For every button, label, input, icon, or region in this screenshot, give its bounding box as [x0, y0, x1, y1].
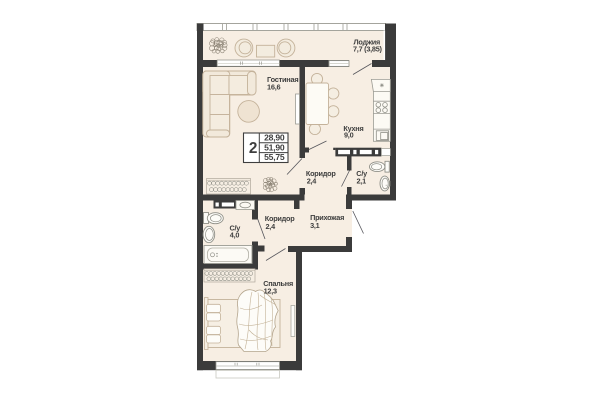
svg-text:2,4: 2,4	[266, 222, 277, 231]
svg-text:4,0: 4,0	[230, 231, 240, 240]
svg-text:2: 2	[249, 140, 257, 157]
svg-text:51,90: 51,90	[264, 142, 285, 152]
svg-text:3,1: 3,1	[310, 221, 320, 230]
svg-text:2,1: 2,1	[357, 177, 367, 186]
svg-text:7,7 (3,85): 7,7 (3,85)	[353, 45, 383, 54]
svg-text:28,90: 28,90	[264, 133, 285, 143]
svg-text:55,75: 55,75	[264, 152, 285, 162]
svg-text:2,4: 2,4	[307, 176, 318, 185]
svg-text:9,0: 9,0	[344, 131, 354, 140]
svg-text:12,3: 12,3	[264, 286, 277, 295]
svg-text:16,6: 16,6	[267, 82, 281, 91]
